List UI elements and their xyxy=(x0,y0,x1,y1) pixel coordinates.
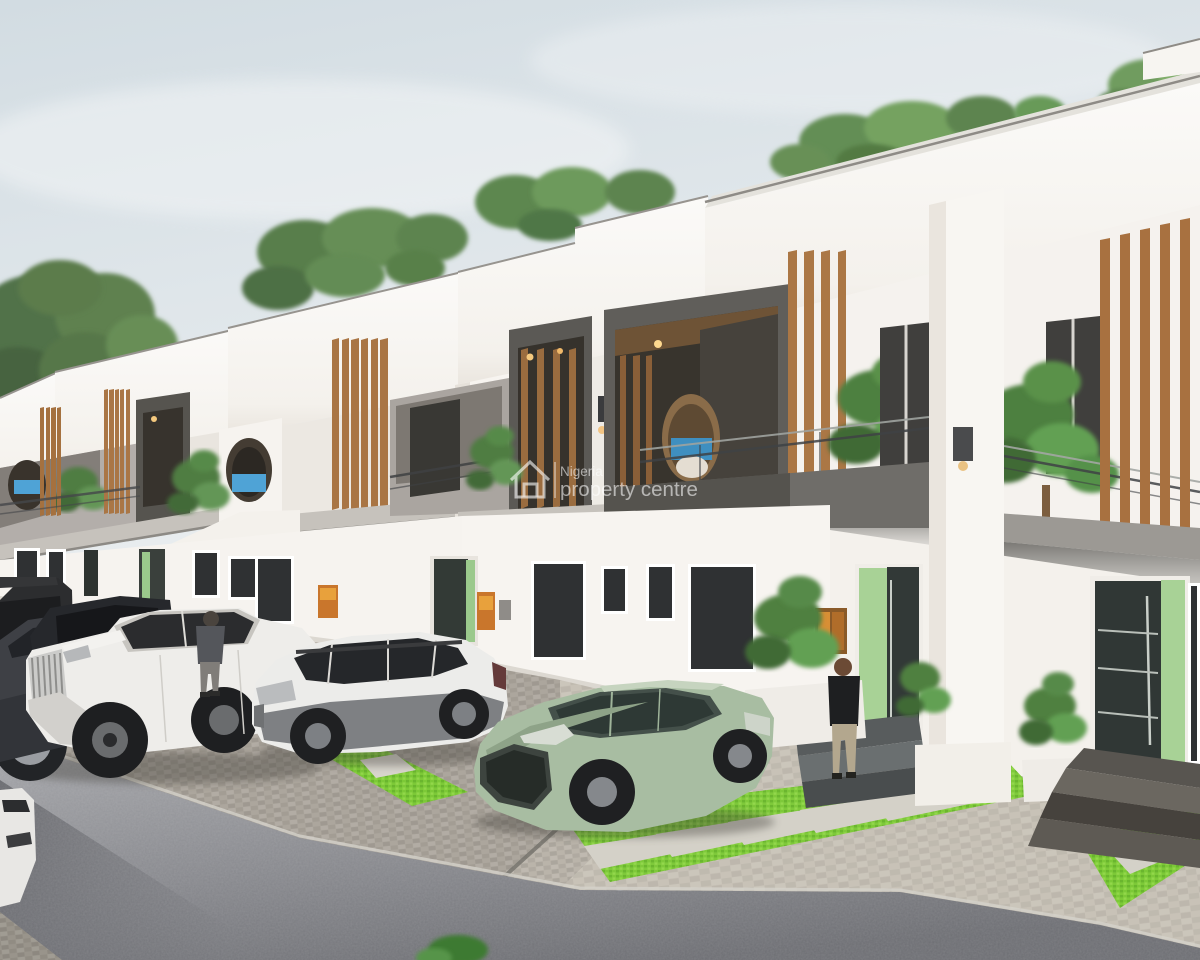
svg-text:Nigeria: Nigeria xyxy=(560,464,603,479)
svg-text:property centre: property centre xyxy=(560,478,698,501)
